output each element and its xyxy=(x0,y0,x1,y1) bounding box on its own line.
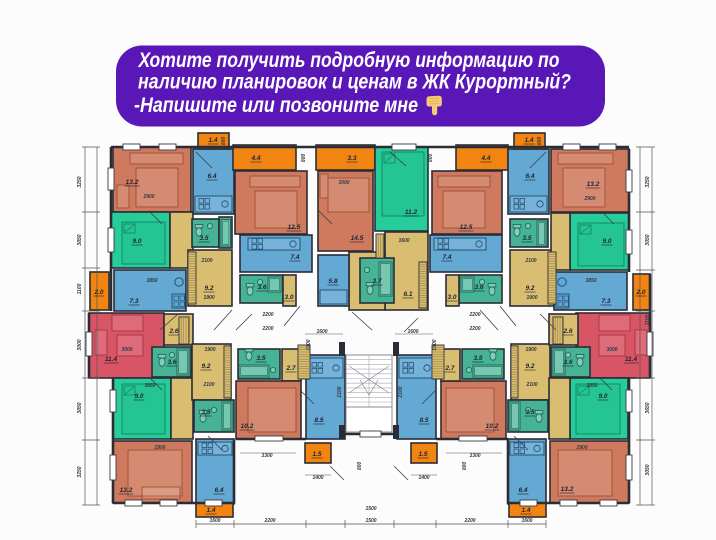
svg-text:1900: 1900 xyxy=(525,347,536,353)
svg-text:9.2: 9.2 xyxy=(201,363,210,370)
svg-text:3.0: 3.0 xyxy=(284,294,293,301)
svg-text:9.0: 9.0 xyxy=(598,393,607,400)
svg-text:7.4: 7.4 xyxy=(442,254,451,261)
svg-text:3850: 3850 xyxy=(146,278,157,284)
svg-text:8.5: 8.5 xyxy=(314,417,323,424)
svg-text:2200: 2200 xyxy=(261,326,273,332)
svg-text:12.5: 12.5 xyxy=(460,224,473,231)
svg-text:800: 800 xyxy=(357,462,363,471)
svg-text:2900: 2900 xyxy=(153,445,165,451)
svg-text:3850: 3850 xyxy=(586,383,597,389)
svg-text:1900: 1900 xyxy=(204,347,215,353)
svg-text:2.7: 2.7 xyxy=(444,365,454,372)
svg-text:2200: 2200 xyxy=(261,312,273,318)
svg-text:1400: 1400 xyxy=(312,475,323,481)
svg-text:3.5: 3.5 xyxy=(256,355,265,362)
svg-text:13.2: 13.2 xyxy=(587,181,600,188)
svg-text:6.4: 6.4 xyxy=(214,487,223,494)
svg-text:1900: 1900 xyxy=(306,339,312,350)
svg-text:2900: 2900 xyxy=(583,196,595,202)
svg-text:3000: 3000 xyxy=(338,180,349,186)
svg-text:800: 800 xyxy=(428,154,434,163)
svg-text:3050: 3050 xyxy=(645,464,651,475)
svg-text:3250: 3250 xyxy=(77,176,83,187)
svg-text:6.1: 6.1 xyxy=(403,291,412,298)
svg-text:1500: 1500 xyxy=(365,518,376,524)
svg-text:2.0: 2.0 xyxy=(93,289,103,296)
svg-text:6.4: 6.4 xyxy=(525,173,534,180)
svg-text:2200: 2200 xyxy=(263,518,275,524)
svg-text:1900: 1900 xyxy=(432,339,438,350)
svg-text:2900: 2900 xyxy=(575,445,587,451)
svg-text:2100: 2100 xyxy=(524,258,536,264)
svg-text:1900: 1900 xyxy=(526,295,537,301)
svg-text:7.3: 7.3 xyxy=(129,298,138,305)
svg-text:8.5: 8.5 xyxy=(419,417,428,424)
svg-text:3.5: 3.5 xyxy=(473,355,482,362)
svg-text:13.2: 13.2 xyxy=(561,486,574,493)
svg-text:4.4: 4.4 xyxy=(480,155,490,162)
svg-text:1.4: 1.4 xyxy=(524,137,533,144)
svg-text:3.7: 3.7 xyxy=(372,278,381,285)
svg-text:Хотите получить подробную инфо: Хотите получить подробную информацию по xyxy=(138,49,560,72)
svg-text:11.2: 11.2 xyxy=(405,209,418,216)
svg-text:10.2: 10.2 xyxy=(241,423,254,430)
svg-text:9.2: 9.2 xyxy=(525,363,534,370)
svg-text:3000: 3000 xyxy=(606,347,617,353)
svg-text:3.6: 3.6 xyxy=(167,359,176,366)
svg-text:1600: 1600 xyxy=(398,238,409,244)
svg-text:7.3: 7.3 xyxy=(601,298,610,305)
svg-text:1.4: 1.4 xyxy=(521,507,530,514)
svg-text:7.4: 7.4 xyxy=(290,254,299,261)
svg-text:3850: 3850 xyxy=(144,383,155,389)
svg-text:1600: 1600 xyxy=(209,518,220,524)
svg-text:3650: 3650 xyxy=(645,402,651,413)
svg-text:1.5: 1.5 xyxy=(312,451,321,458)
svg-text:2.0: 2.0 xyxy=(635,289,645,296)
svg-text:6.4: 6.4 xyxy=(518,487,527,494)
svg-text:3000: 3000 xyxy=(121,347,132,353)
svg-text:2100: 2100 xyxy=(525,382,537,388)
svg-text:2100: 2100 xyxy=(337,386,343,398)
svg-text:3.3: 3.3 xyxy=(347,155,356,162)
svg-text:2900: 2900 xyxy=(142,194,154,200)
svg-text:наличию планировок и ценам в Ж: наличию планировок и ценам в ЖК Курортны… xyxy=(138,71,571,94)
svg-text:3850: 3850 xyxy=(585,278,596,284)
svg-text:3850: 3850 xyxy=(77,402,83,413)
svg-text:13.2: 13.2 xyxy=(120,487,133,494)
svg-text:9.0: 9.0 xyxy=(602,238,611,245)
svg-text:800: 800 xyxy=(537,137,543,146)
svg-text:800: 800 xyxy=(221,137,227,146)
svg-text:3250: 3250 xyxy=(645,176,651,187)
svg-text:3.0: 3.0 xyxy=(447,294,456,301)
svg-text:3.6: 3.6 xyxy=(257,284,266,291)
svg-text:2.6: 2.6 xyxy=(168,328,178,335)
svg-text:2200: 2200 xyxy=(463,518,475,524)
svg-text:10.2: 10.2 xyxy=(486,423,499,430)
svg-text:3.6: 3.6 xyxy=(563,359,572,366)
svg-text:11.4: 11.4 xyxy=(625,356,638,363)
svg-text:3000: 3000 xyxy=(77,339,83,350)
svg-text:6.4: 6.4 xyxy=(207,173,216,180)
svg-text:1.5: 1.5 xyxy=(418,451,427,458)
svg-text:2200: 2200 xyxy=(468,326,480,332)
svg-text:13.2: 13.2 xyxy=(126,179,139,186)
svg-text:1900: 1900 xyxy=(203,295,214,301)
svg-text:2.6: 2.6 xyxy=(562,328,572,335)
svg-text:3300: 3300 xyxy=(261,453,272,459)
svg-text:1600: 1600 xyxy=(521,518,532,524)
svg-text:3.6: 3.6 xyxy=(474,284,483,291)
svg-text:2.7: 2.7 xyxy=(285,365,295,372)
svg-text:3.5: 3.5 xyxy=(199,235,208,242)
svg-text:3.5: 3.5 xyxy=(522,235,531,242)
svg-text:3850: 3850 xyxy=(77,234,83,245)
svg-text:3250: 3250 xyxy=(77,466,83,477)
svg-text:4.4: 4.4 xyxy=(250,155,260,162)
svg-text:3.5: 3.5 xyxy=(525,409,534,416)
svg-text:1500: 1500 xyxy=(365,506,376,512)
svg-text:3050: 3050 xyxy=(645,234,651,245)
svg-text:5.8: 5.8 xyxy=(328,278,337,285)
svg-text:800: 800 xyxy=(462,462,468,471)
svg-text:1.4: 1.4 xyxy=(206,507,215,514)
svg-text:9.0: 9.0 xyxy=(134,393,143,400)
svg-text:1100: 1100 xyxy=(77,283,83,294)
svg-text:9.2: 9.2 xyxy=(525,285,534,292)
svg-text:2100: 2100 xyxy=(202,382,214,388)
svg-text:-Напишите или позвоните мне: -Напишите или позвоните мне xyxy=(134,94,418,117)
svg-text:2100: 2100 xyxy=(200,258,212,264)
svg-text:9.0: 9.0 xyxy=(132,238,141,245)
svg-text:1.4: 1.4 xyxy=(208,137,217,144)
svg-text:1400: 1400 xyxy=(418,475,429,481)
svg-text:3300: 3300 xyxy=(469,453,480,459)
svg-text:12.5: 12.5 xyxy=(288,224,301,231)
svg-text:800: 800 xyxy=(301,154,307,163)
svg-text:1100: 1100 xyxy=(645,314,651,325)
svg-text:2200: 2200 xyxy=(468,312,480,318)
svg-text:2100: 2100 xyxy=(398,386,404,398)
svg-text:3.5: 3.5 xyxy=(201,409,210,416)
svg-text:9.2: 9.2 xyxy=(204,285,213,292)
svg-text:11.4: 11.4 xyxy=(105,356,118,363)
svg-text:14.5: 14.5 xyxy=(351,235,364,242)
